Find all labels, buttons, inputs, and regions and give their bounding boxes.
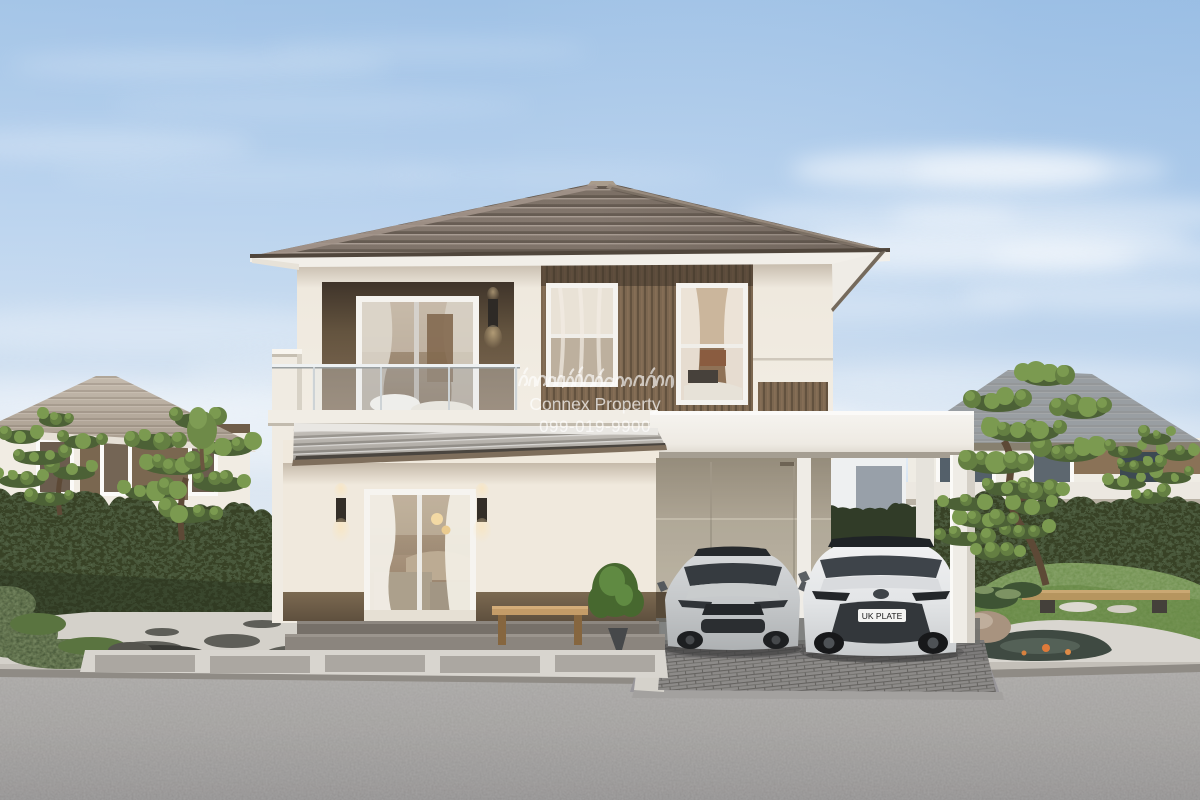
svg-text:UK PLATE: UK PLATE <box>862 611 903 621</box>
svg-text:Connex Property: Connex Property <box>529 394 661 414</box>
svg-text:099-019-9900: 099-019-9900 <box>539 417 651 436</box>
